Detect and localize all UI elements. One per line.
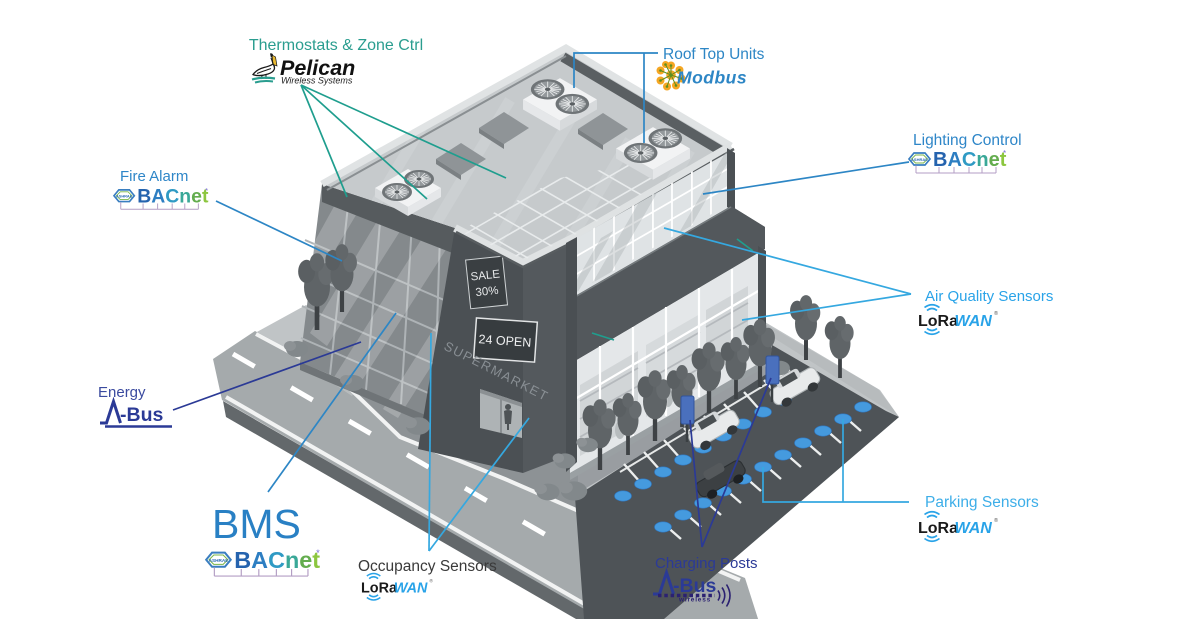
svg-text:Modbus: Modbus — [677, 68, 747, 88]
svg-text:BMS: BMS — [212, 501, 301, 547]
svg-text:Wireless Systems: Wireless Systems — [281, 76, 353, 86]
svg-text:Charging Posts: Charging Posts — [655, 555, 758, 572]
svg-text:Air Quality Sensors: Air Quality Sensors — [925, 288, 1053, 305]
svg-text:30%: 30% — [475, 285, 499, 299]
svg-text:Lighting Control: Lighting Control — [913, 132, 1022, 149]
svg-text:Roof Top Units: Roof Top Units — [663, 46, 765, 63]
svg-text:wireless: wireless — [678, 597, 711, 604]
svg-text:Energy: Energy — [98, 384, 146, 401]
svg-text:Occupancy Sensors: Occupancy Sensors — [358, 558, 497, 575]
svg-text:Thermostats & Zone Ctrl: Thermostats & Zone Ctrl — [249, 37, 423, 54]
svg-text:Parking Sensors: Parking Sensors — [925, 494, 1039, 511]
svg-text:Fire Alarm: Fire Alarm — [120, 168, 188, 185]
